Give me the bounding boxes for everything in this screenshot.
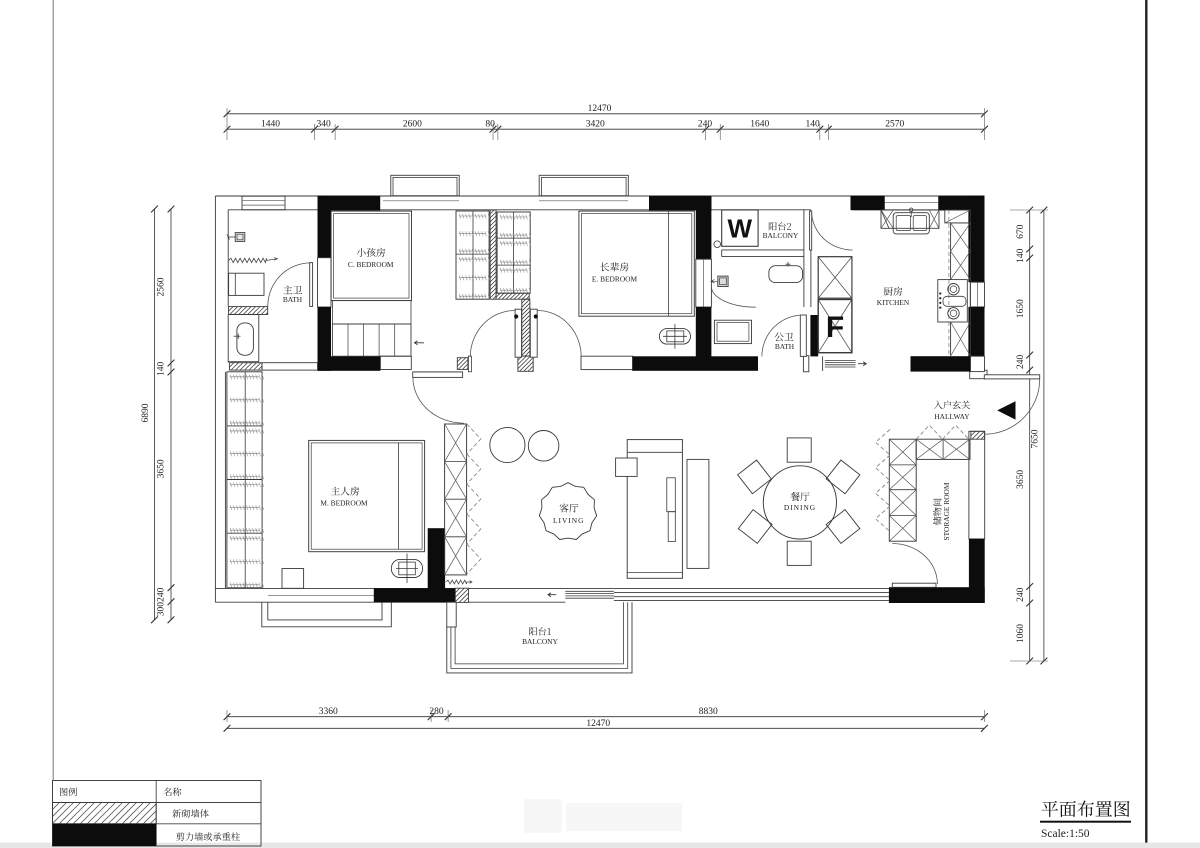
svg-text:3360: 3360: [319, 707, 338, 717]
svg-text:BATH: BATH: [283, 295, 303, 304]
svg-text:3650: 3650: [1016, 470, 1026, 489]
svg-text:BALCONY: BALCONY: [522, 637, 558, 646]
svg-text:1650: 1650: [1016, 299, 1026, 318]
svg-text:HALLWAY: HALLWAY: [934, 412, 970, 421]
svg-text:M. BEDROOM: M. BEDROOM: [320, 498, 368, 507]
svg-text:670: 670: [1016, 224, 1026, 239]
svg-text:300: 300: [157, 602, 167, 617]
svg-text:LIVING: LIVING: [553, 516, 584, 525]
svg-text:140: 140: [805, 120, 820, 130]
svg-text:BATH: BATH: [775, 342, 795, 351]
svg-text:C. BEDROOM: C. BEDROOM: [348, 260, 394, 269]
svg-text:12470: 12470: [586, 719, 610, 729]
svg-text:6890: 6890: [141, 403, 151, 422]
svg-text:7650: 7650: [1031, 429, 1041, 448]
svg-text:8830: 8830: [699, 707, 718, 717]
svg-text:1640: 1640: [750, 120, 769, 130]
svg-text:240: 240: [1016, 355, 1026, 370]
svg-text:2560: 2560: [157, 277, 167, 296]
svg-text:3420: 3420: [586, 120, 605, 130]
svg-text:12470: 12470: [588, 104, 612, 114]
svg-text:240: 240: [698, 120, 713, 130]
svg-text:1440: 1440: [261, 120, 280, 130]
svg-text:280: 280: [429, 707, 444, 717]
svg-text:DINING: DINING: [784, 503, 816, 512]
svg-text:240: 240: [157, 587, 167, 602]
svg-text:3650: 3650: [157, 459, 167, 478]
svg-text:140: 140: [1016, 248, 1026, 262]
svg-text:1060: 1060: [1016, 624, 1026, 643]
svg-text:W: W: [728, 214, 753, 244]
svg-text:STORAGE ROOM: STORAGE ROOM: [942, 482, 951, 540]
svg-text:2600: 2600: [403, 120, 422, 130]
svg-text:340: 340: [316, 120, 331, 130]
svg-text:2570: 2570: [885, 120, 904, 130]
svg-text:240: 240: [1016, 587, 1026, 602]
svg-text:Scale:1:50: Scale:1:50: [1041, 828, 1090, 840]
svg-text:140: 140: [157, 362, 167, 377]
svg-text:80: 80: [485, 120, 495, 130]
svg-text:KITCHEN: KITCHEN: [877, 298, 910, 307]
svg-text:E. BEDROOM: E. BEDROOM: [592, 275, 638, 284]
svg-text:BALCONY: BALCONY: [763, 231, 799, 240]
svg-text:F: F: [826, 311, 844, 344]
